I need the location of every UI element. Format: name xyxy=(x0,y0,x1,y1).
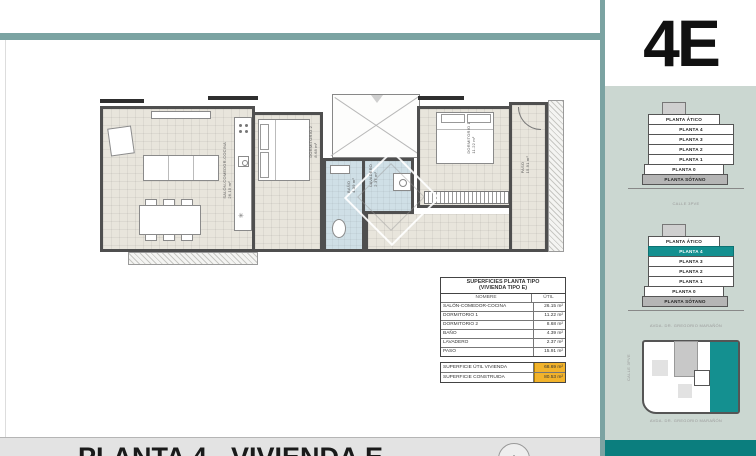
sheet-title: PLANTA 4 - VIVIENDA E xyxy=(78,442,383,456)
freezer-icon: ✳ xyxy=(238,212,244,220)
armchair-icon xyxy=(107,125,135,156)
elevation-diagram-highlighted: PLANTA ÁTICO PLANTA 4 PLANTA 3 PLANTA 2 … xyxy=(628,224,744,336)
sideboard-icon xyxy=(151,111,211,119)
chair-icon xyxy=(181,199,193,206)
pillow-icon xyxy=(260,152,269,178)
kitchen-counter-icon: ✳ xyxy=(234,117,252,231)
patio-block xyxy=(678,384,692,398)
total-construida-value: 80.53 m² xyxy=(534,373,565,382)
stair-arrow-icon xyxy=(371,95,383,103)
chair-icon xyxy=(145,199,157,206)
street-label: AVDA. DR. GREGORIO MARAÑÓN xyxy=(618,323,754,328)
table-row: LAVADERO 2.37 m² xyxy=(441,338,565,347)
bed-icon xyxy=(436,112,494,164)
stair-core xyxy=(332,94,420,158)
total-util-value: 68.69 m² xyxy=(534,363,565,372)
left-frame-line xyxy=(5,40,6,437)
col-header-util: ÚTIL xyxy=(532,295,565,300)
room-label-bano: BAÑO4.39 m² xyxy=(346,178,356,193)
plus-icon: + xyxy=(510,451,519,456)
total-row-construida: SUPERFICIE CONSTRUIDA 80.53 m² xyxy=(441,372,565,382)
room-paso xyxy=(509,102,548,252)
room-label-lavadero: LAVADERO2.37 m² xyxy=(368,164,378,187)
entrance-door-icon xyxy=(518,107,541,130)
toilet-icon xyxy=(332,219,346,238)
floor-plan: ✳ xyxy=(88,90,568,270)
street-label: AVDA. DR. GREGORIO MARAÑÓN xyxy=(622,418,750,423)
floor-row-sotano: PLANTA SÓTANO xyxy=(642,296,728,307)
chair-icon xyxy=(163,234,175,241)
room-label-paso: PASO15.91 m² xyxy=(520,156,530,173)
room-label-dormitorio-2: DORMITORIO 28.68 m² xyxy=(308,126,318,158)
sofa-icon xyxy=(143,155,219,181)
floor-row-sotano: PLANTA SÓTANO xyxy=(642,174,728,185)
chair-icon xyxy=(145,234,157,241)
elevation-diagram-plain: PLANTA ÁTICO PLANTA 4 PLANTA 3 PLANTA 2 … xyxy=(628,102,744,214)
street-label: CALLE 3PVE xyxy=(618,201,754,206)
wall-tick xyxy=(418,96,464,100)
chair-icon xyxy=(163,199,175,206)
street-label-vertical: CALLE 3PVE xyxy=(626,354,631,381)
surfaces-table-title: SUPERFICIES PLANTA TIPO (VIVIENDA TIPO E… xyxy=(440,277,566,294)
table-header-row: NOMBRE ÚTIL xyxy=(441,294,565,302)
pillow-icon xyxy=(441,114,465,123)
table-row: DORMITORIO 2 8.68 m² xyxy=(441,320,565,329)
top-accent-bar xyxy=(0,33,600,40)
neighbour-hatch xyxy=(548,100,564,252)
total-row-util: SUPERFICIE ÚTIL VIVIENDA 68.69 m² xyxy=(441,363,565,372)
sheet-title-bar: PLANTA 4 - VIVIENDA E + xyxy=(0,437,600,456)
ground-line xyxy=(628,188,744,189)
room-label-salon: SALÓN-COMEDOR-COCINA26.15 m² xyxy=(222,142,232,199)
zoom-in-button[interactable]: + xyxy=(498,443,530,456)
highlighted-unit-block xyxy=(710,342,738,412)
site-plan: CALLE 3PVE AVDA. DR. GREGORIO MARAÑÓN xyxy=(622,338,750,430)
patio-block xyxy=(652,360,668,376)
table-row: BAÑO 4.39 m² xyxy=(441,329,565,338)
unit-code: 4E xyxy=(605,0,756,86)
table-row: PASO 15.91 m² xyxy=(441,347,565,356)
chair-icon xyxy=(181,234,193,241)
ground-line xyxy=(628,310,744,311)
surfaces-table-totals: SUPERFICIE ÚTIL VIVIENDA 68.69 m² SUPERF… xyxy=(440,362,566,383)
surfaces-table: SUPERFICIES PLANTA TIPO (VIVIENDA TIPO E… xyxy=(440,277,566,383)
surfaces-table-grid: NOMBRE ÚTIL SALÓN-COMEDOR-COCINA 26.15 m… xyxy=(440,294,566,357)
pillow-icon xyxy=(260,124,269,150)
wall-tick xyxy=(100,99,144,103)
hob-icon xyxy=(239,124,242,127)
wall-tick xyxy=(208,96,258,100)
unit-notch xyxy=(694,370,710,386)
table-row: SALÓN-COMEDOR-COCINA 26.15 m² xyxy=(441,302,565,311)
plan-sheet-page: 4E ✳ xyxy=(0,0,756,456)
bed-icon xyxy=(258,119,310,181)
bath-sink-icon xyxy=(330,165,350,174)
col-header-nombre: NOMBRE xyxy=(441,294,532,302)
sink-icon xyxy=(238,156,249,167)
table-row: DORMITORIO 1 11.22 m² xyxy=(441,311,565,320)
panel-bottom-bar xyxy=(605,440,756,456)
room-label-dormitorio-1: DORMITORIO 111.22 m² xyxy=(466,122,476,154)
dining-table-icon xyxy=(139,205,201,235)
balcony-hatch xyxy=(128,252,258,265)
